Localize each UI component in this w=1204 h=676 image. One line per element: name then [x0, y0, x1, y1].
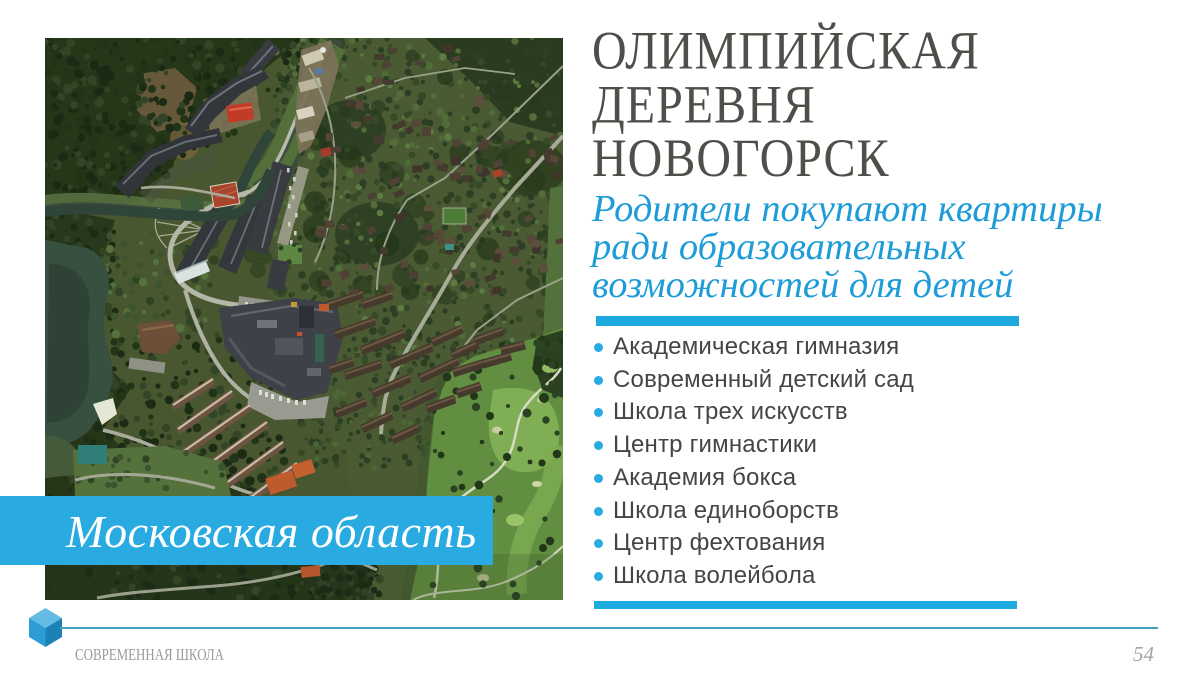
svg-text:СОВРЕМЕННАЯ ШКОЛА: СОВРЕМЕННАЯ ШКОЛА [75, 645, 224, 664]
